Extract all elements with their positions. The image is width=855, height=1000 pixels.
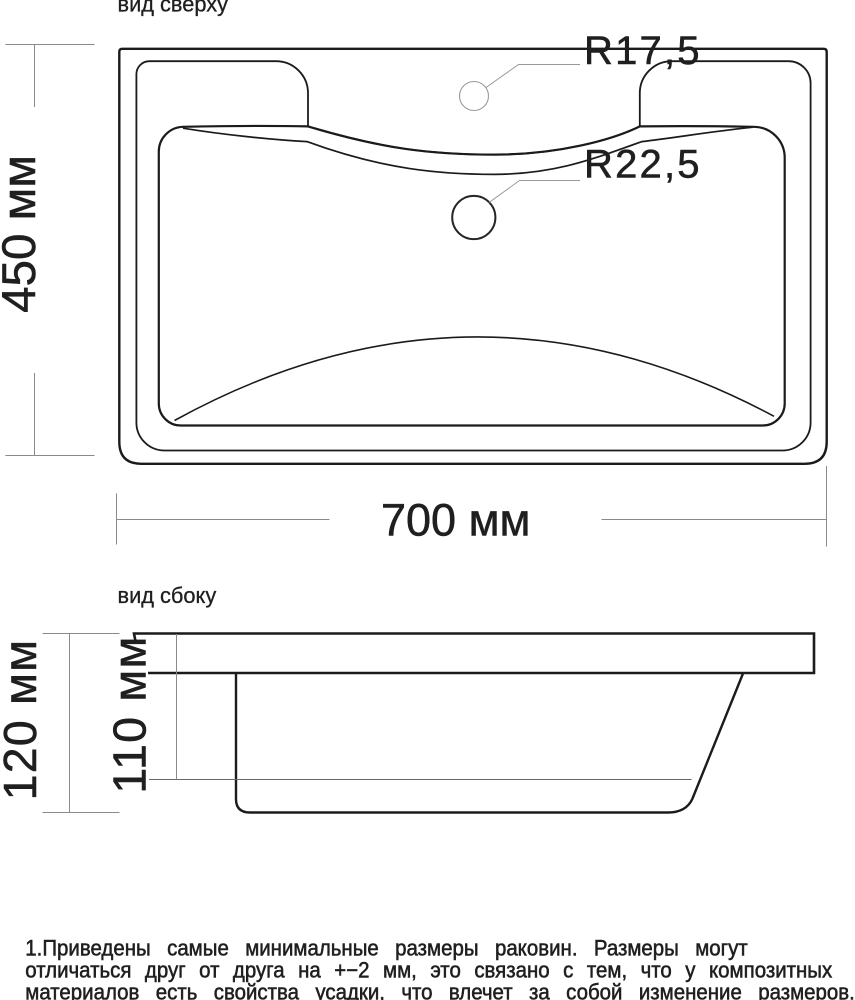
svg-text:материалов есть свойства усадк: материалов есть свойства усадки, что вле… bbox=[25, 980, 855, 1000]
svg-text:вид сверху: вид сверху bbox=[118, 0, 229, 17]
svg-text:вид сбоку: вид сбоку bbox=[118, 583, 217, 608]
svg-text:450 мм: 450 мм bbox=[0, 155, 46, 313]
svg-text:R22,5: R22,5 bbox=[584, 142, 702, 186]
svg-text:110 мм: 110 мм bbox=[104, 635, 156, 793]
svg-text:R17,5: R17,5 bbox=[584, 29, 702, 73]
svg-text:120 мм: 120 мм bbox=[0, 639, 46, 801]
svg-text:700 мм: 700 мм bbox=[381, 495, 530, 546]
